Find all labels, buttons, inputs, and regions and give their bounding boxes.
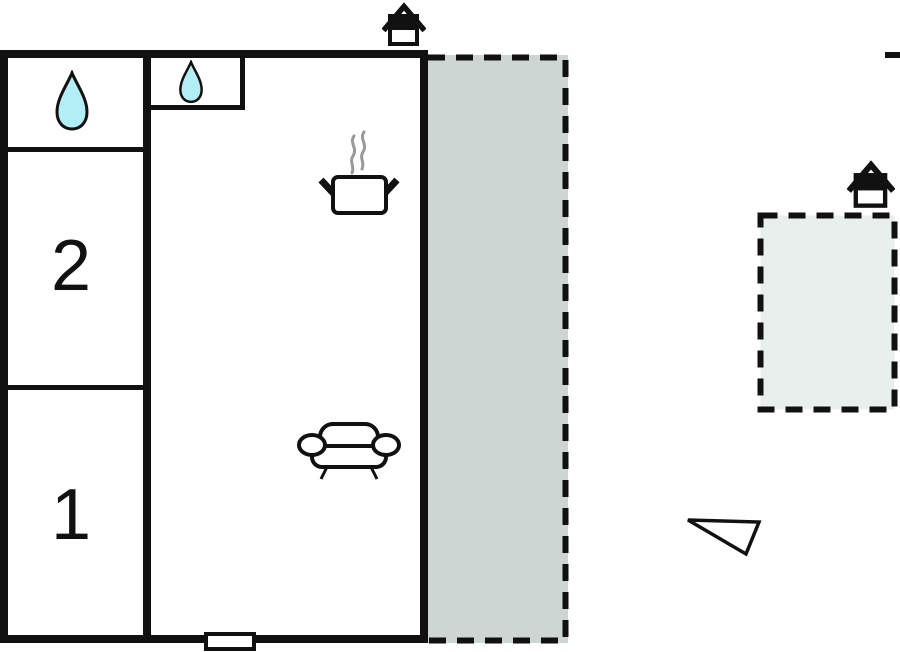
- water-drop-icon: [54, 70, 90, 132]
- steam-line: [362, 132, 365, 169]
- wall-bedrooms-divider: [4, 385, 151, 390]
- room-label-bedroom1: 1: [21, 477, 121, 553]
- room-label-bedroom2: 2: [21, 228, 121, 304]
- triangle-pointer-icon: [680, 508, 770, 563]
- wall-utility-right: [240, 54, 245, 109]
- boundary-dash: [885, 52, 900, 58]
- cooking-pot-icon: [313, 128, 405, 220]
- water-drop-icon: [178, 60, 204, 104]
- wall-utility-bottom: [147, 105, 245, 110]
- wall-vertical-main: [143, 54, 151, 637]
- wall-bathroom-bottom: [4, 147, 151, 152]
- steam-line: [352, 136, 355, 173]
- terrace-area: [428, 50, 576, 648]
- house-entrance-icon: [847, 160, 895, 210]
- house-entrance-icon: [382, 2, 426, 48]
- floor-plan: 2 1: [0, 0, 900, 652]
- annex-plot: [755, 210, 900, 416]
- door-icon: [204, 632, 256, 651]
- sofa-icon: [295, 415, 405, 485]
